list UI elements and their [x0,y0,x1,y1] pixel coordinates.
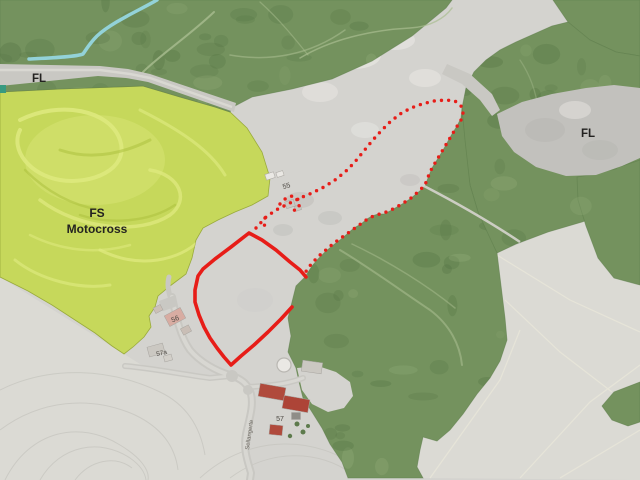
zone-label-fl-top: FL [32,73,46,85]
house-number-57: 57 [276,416,284,423]
zone-label-motocross: Motocross [67,222,128,236]
map-canvas[interactable]: FL FL FS Motocross 55 56 57a 57 Sellange… [0,0,640,480]
teal-zone-patch [0,85,6,93]
zone-label-fs: FS [89,206,104,220]
building [292,413,301,420]
silo-building [277,358,291,372]
building [269,424,283,435]
zoning-map-view[interactable]: FL FL FS Motocross 55 56 57a 57 Sellange… [0,0,640,480]
zone-label-fl-right: FL [581,128,595,140]
